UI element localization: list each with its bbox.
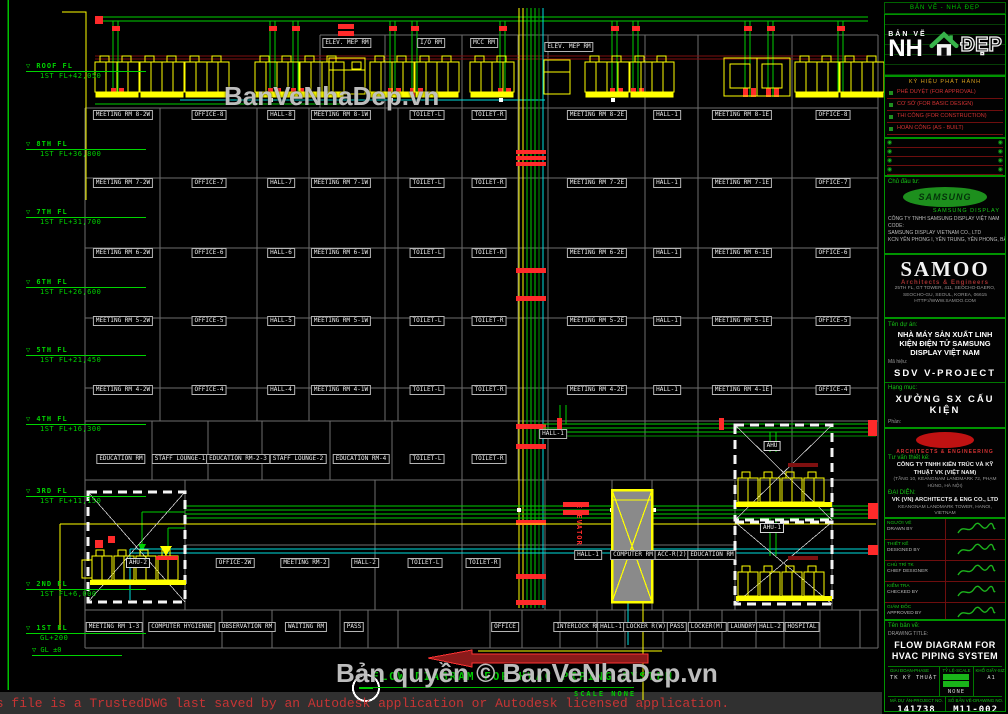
part-label: Phần: xyxy=(888,419,1002,425)
room-label: HALL-1 xyxy=(653,248,681,258)
project-block: Tên dự án: NHÀ MÁY SẢN XUẤT LINH KIỆN ĐI… xyxy=(884,318,1006,428)
owner-block: Chủ đầu tư: SAMSUNG SAMSUNG DISPLAY CÔNG… xyxy=(884,176,1006,254)
signature-scribble xyxy=(956,542,996,558)
room-label: OFFICE-5 xyxy=(816,316,851,326)
owner-label: Chủ đầu tư: xyxy=(888,179,1002,185)
signature-role: KIỂM TRACHECKED BY xyxy=(885,582,946,602)
drawing-title-text: FLOW DIAGRAM FOR HVAC PIPING SYSTEM xyxy=(888,640,1002,662)
room-label: TOILET-L xyxy=(410,385,445,395)
banvenhadep-logo: BẢN VẼ NH ĐẸP xyxy=(884,14,1006,76)
room-label: MEETING RM 4-1E xyxy=(712,385,772,395)
floor-level-label: ▽ ROOF FL1ST FL+42,050 xyxy=(26,62,146,81)
room-label: EDUCATION RM xyxy=(96,454,145,464)
room-label: HALL-1 xyxy=(597,622,625,632)
trusteddwg-strip: is file is a TrustedDWG last saved by an… xyxy=(0,692,882,714)
room-label: OFFICE-4 xyxy=(816,385,851,395)
designer-name-en: VK (VN) ARCHITECTS & ENG CO., LTD xyxy=(888,497,1002,505)
samoo-line: HTTP://WWW.SAMOO.COM xyxy=(885,299,1005,306)
room-label: TOILET-R xyxy=(472,385,507,395)
floor-level-label: ▽ 2ND FL1ST FL+6,000 xyxy=(26,580,146,599)
revision-row: CƠ SỞ (FOR BASIC DESIGN) xyxy=(887,99,1003,111)
designer-label: Tư vấn thiết kế: xyxy=(888,455,1002,461)
elevator-tag: ELEVATOR xyxy=(575,504,583,546)
signature-scribble xyxy=(956,563,996,579)
title-label-vi: Tên bản vẽ: xyxy=(888,623,1002,629)
room-label: MCC RM xyxy=(470,38,498,48)
cad-sheet: ELEV. MEP RMI/O RMMCC RMELEV. MEP RMMEET… xyxy=(0,0,1008,714)
room-label: COMPUTER HYGIENNE xyxy=(148,622,215,632)
samsung-logo: SAMSUNG xyxy=(903,187,987,207)
room-label: AHU-2 xyxy=(126,558,150,568)
floor-level-label: ▽ 1ST FLGL+200▽ GL ±0 xyxy=(26,624,146,656)
signature-scribble xyxy=(956,584,996,600)
room-label: COMPUTER RM xyxy=(610,550,656,560)
symbol-row: ◉◉ xyxy=(887,148,1003,157)
designer-addr1: (TẦNG 10, KEANGNAM LANDMARK 72, PHẠM HÙN… xyxy=(888,477,1002,490)
room-label: MEETING RM 6-2E xyxy=(567,248,627,258)
room-label: OFFICE xyxy=(491,622,519,632)
signature-role: THIẾT KẾDESIGNED BY xyxy=(885,540,946,560)
signature-row: KIỂM TRACHECKED BY xyxy=(885,582,1005,603)
room-label: TOILET-L xyxy=(408,558,443,568)
owner-sub: SAMSUNG DISPLAY xyxy=(888,208,1000,214)
sidebar-top-note: BẢN VẼ - NHÀ ĐẸP xyxy=(884,2,1006,14)
room-label: PASS xyxy=(667,622,687,632)
room-label: HALL-6 xyxy=(267,248,295,258)
drawing-title-block: Tên bản vẽ: DRAWING TITLE: FLOW DIAGRAM … xyxy=(884,620,1006,712)
house-icon xyxy=(929,30,959,60)
room-label: OFFICE-7 xyxy=(192,178,227,188)
floor-level-label: ▽ 8TH FL1ST FL+36,800 xyxy=(26,140,146,159)
room-label: EDUCATION RM-4 xyxy=(333,454,390,464)
room-label: AHU xyxy=(764,441,781,451)
samoo-block: SAMOO Architects & Engineers 25TH FL, GT… xyxy=(884,254,1006,318)
room-label: MEETING RM 8-1E xyxy=(712,110,772,120)
room-label: MEETING RM 6-1E xyxy=(712,248,772,258)
project-code: SDV V-PROJECT xyxy=(888,368,1002,379)
meta-cell: TỶ LỆ-SCALENONE xyxy=(940,667,973,696)
floor-level-label: ▽ 6TH FL1ST FL+26,600 xyxy=(26,278,146,297)
room-label: TOILET-L xyxy=(410,248,445,258)
owner-line: KCN YÊN PHONG I, YÊN TRUNG, YÊN PHONG, B… xyxy=(888,237,1002,244)
room-label: MEETING RM 7-1W xyxy=(311,178,371,188)
room-label: EDUCATION RM-2-3 xyxy=(206,454,270,464)
room-label: HALL-1 xyxy=(574,550,602,560)
room-label: LAUNDRY xyxy=(727,622,758,632)
samoo-wordmark: SAMOO xyxy=(885,258,1005,280)
room-label: WAITING RM xyxy=(285,622,327,632)
room-label: MEETING RM-2 xyxy=(280,558,329,568)
room-label: HALL-4 xyxy=(267,385,295,395)
room-label: LOCKER R(W) xyxy=(623,622,669,632)
symbol-row: ◉◉ xyxy=(887,166,1003,175)
signature-role: GIÁM ĐỐCAPPROVED BY xyxy=(885,603,946,620)
room-label: OFFICE-2W xyxy=(216,558,255,568)
room-label: TOILET-R xyxy=(472,110,507,120)
owner-line: CÔNG TY TNHH SAMSUNG DISPLAY VIỆT NAM xyxy=(888,216,1002,223)
item-label: Hạng mục: xyxy=(888,385,1002,391)
logo-text-dep: ĐẸP xyxy=(961,35,1002,55)
floor-level-label: ▽ 5TH FL1ST FL+21,450 xyxy=(26,346,146,365)
signature-row: GIÁM ĐỐCAPPROVED BY xyxy=(885,603,1005,620)
room-label: TOILET-R xyxy=(472,178,507,188)
room-label: OBSERVATION RM xyxy=(219,622,276,632)
room-label: MEETING RM 8-2E xyxy=(567,110,627,120)
symbol-row: ◉◉ xyxy=(887,139,1003,148)
roof-units xyxy=(95,56,884,97)
room-label: HALL-5 xyxy=(267,316,295,326)
signature-role: NGƯỜI VẼDRAWN BY xyxy=(885,519,946,539)
watermark-bottom: Bản quyền © BanVeNhaDep.vn xyxy=(336,658,718,689)
room-label: ELEV. MEP RM xyxy=(322,38,371,48)
signature-row: THIẾT KẾDESIGNED BY xyxy=(885,540,1005,561)
room-label: MEETING RM 7-1E xyxy=(712,178,772,188)
room-label: OFFICE-6 xyxy=(192,248,227,258)
room-label: HALL-1 xyxy=(539,429,567,439)
room-label: ELEV. MEP RM xyxy=(544,42,593,52)
revision-row: THI CÔNG (FOR CONSTRUCTION) xyxy=(887,111,1003,123)
signature-scribble xyxy=(956,605,996,620)
title-block: BẢN VẼ - NHÀ ĐẸP BẢN VẼ NH ĐẸP KÝ HIỆU P… xyxy=(884,2,1006,714)
revision-row: HOÀN CÔNG (AS - BUILT) xyxy=(887,123,1003,135)
trusteddwg-text: is file is a TrustedDWG last saved by an… xyxy=(0,696,729,711)
floor-level-label: ▽ 3RD FL1ST FL+11,150 xyxy=(26,487,146,506)
room-label: OFFICE-8 xyxy=(816,110,851,120)
designer-name-vi: CÔNG TY TNHH KIẾN TRÚC VÀ KỸ THUẬT VK (V… xyxy=(888,462,1002,477)
revision-table: KÝ HIỆU PHÁT HÀNH PHÊ DUYỆT (FOR APPROVA… xyxy=(884,76,1006,138)
room-label: HALL-1 xyxy=(653,110,681,120)
room-label: MEETING RM 5-1E xyxy=(712,316,772,326)
designer-block: ARCHITECTS & ENGINEERING Tư vấn thiết kế… xyxy=(884,428,1006,518)
room-label: ACC-R(2) xyxy=(655,550,690,560)
designer-addr2: KEANGNAM LANDMARK TOWER, HANOI, VIETNAM xyxy=(888,505,1002,518)
room-label: AHU-1 xyxy=(760,523,784,533)
signature-scribble xyxy=(956,521,996,537)
samoo-line: 25TH FL, GT TOWER, 411, SEOCHO-DAERO, xyxy=(885,286,1005,293)
room-label: OFFICE-8 xyxy=(192,110,227,120)
project-name: NHÀ MÁY SẢN XUẤT LINH KIỆN ĐIỆN TỬ SAMSU… xyxy=(888,330,1002,357)
room-label: TOILET-R xyxy=(472,454,507,464)
room-label: MEETING RM 7-2W xyxy=(93,178,153,188)
room-label: OFFICE-5 xyxy=(192,316,227,326)
upper-distribution xyxy=(543,405,877,452)
room-label: HOSPITAL xyxy=(785,622,820,632)
room-label: MEETING RM 5-1W xyxy=(311,316,371,326)
room-label: OFFICE-7 xyxy=(816,178,851,188)
logo-text-big: NH xyxy=(888,38,923,60)
room-label: STAFF LOUNGE-1 xyxy=(152,454,209,464)
room-label: TOILET-L xyxy=(410,316,445,326)
room-label: MEETING RM 7-2E xyxy=(567,178,627,188)
room-label: INTERLOCK RM xyxy=(553,622,602,632)
project-label: Tên dự án: xyxy=(888,322,1002,328)
room-label: MEETING RM 6-1W xyxy=(311,248,371,258)
symbol-table: ◉◉◉◉◉◉◉◉ xyxy=(884,138,1006,176)
room-label: TOILET-R xyxy=(472,316,507,326)
cad-drawing xyxy=(0,0,1008,714)
designer-label2: ĐẠI DIỆN: xyxy=(888,490,1002,496)
room-label: HALL-1 xyxy=(653,385,681,395)
item-name: XƯỞNG SX CẤU KIỆN xyxy=(888,394,1002,416)
room-label: OFFICE-4 xyxy=(192,385,227,395)
room-label: EDUCATION RM xyxy=(687,550,736,560)
room-label: MEETING RM 8-2W xyxy=(93,110,153,120)
ahu-units xyxy=(82,463,832,601)
room-label: MEETING RM 5-2E xyxy=(567,316,627,326)
room-label: TOILET-R xyxy=(466,558,501,568)
vk-logo xyxy=(916,432,974,448)
revision-row: PHÊ DUYỆT (FOR APPROVAL) xyxy=(887,87,1003,99)
grid-lines xyxy=(85,35,878,648)
meta-cell: GIAI ĐOẠN-PHASETK KỸ THUẬT xyxy=(888,667,940,696)
room-label: HALL-2 xyxy=(351,558,379,568)
room-label: LOCKER(M) xyxy=(688,622,727,632)
room-label: TOILET-L xyxy=(410,454,445,464)
owner-line: SAMSUNG DISPLAY VIETNAM CO., LTD xyxy=(888,230,1002,237)
room-label: MEETING RM 6-2W xyxy=(93,248,153,258)
room-label: I/O RM xyxy=(417,38,445,48)
room-label: HALL-1 xyxy=(653,178,681,188)
symbol-row: ◉◉ xyxy=(887,157,1003,166)
meta-cell: SỐ BẢN VẼ-DRAWING NO.M11-002 xyxy=(946,697,1005,712)
room-label: PASS xyxy=(344,622,364,632)
room-label: OFFICE-6 xyxy=(816,248,851,258)
signature-role: CHỦ TRÌ TKCHIEF DESIGNER xyxy=(885,561,946,581)
signature-row: CHỦ TRÌ TKCHIEF DESIGNER xyxy=(885,561,1005,582)
watermark-center: BanVeNhaDep.vn xyxy=(224,81,439,112)
room-label: MEETING RM 4-1W xyxy=(311,385,371,395)
room-label: HALL-1 xyxy=(653,316,681,326)
revision-header: KÝ HIỆU PHÁT HÀNH xyxy=(887,78,1003,87)
title-label-en: DRAWING TITLE: xyxy=(888,631,1002,637)
signature-table: NGƯỜI VẼDRAWN BYTHIẾT KẾDESIGNED BYCHỦ T… xyxy=(884,518,1006,620)
floor-level-label: ▽ 7TH FL1ST FL+31,700 xyxy=(26,208,146,227)
signature-row: NGƯỜI VẼDRAWN BY xyxy=(885,519,1005,540)
floor-level-label: ▽ 4TH FL1ST FL+16,300 xyxy=(26,415,146,434)
roof-piping xyxy=(62,12,868,200)
sheet-scale: SCALE NONE xyxy=(574,690,636,698)
room-label: MEETING RM 4-2E xyxy=(567,385,627,395)
room-label: TOILET-L xyxy=(410,178,445,188)
meta-cell: MÃ DỰ ÁN-PROJECT NO.141738 xyxy=(888,697,946,712)
project-code-label: Mã hiệu: xyxy=(888,359,1002,365)
room-label: TOILET-R xyxy=(472,248,507,258)
room-label: MEETING RM 5-2W xyxy=(93,316,153,326)
room-label: HALL-7 xyxy=(267,178,295,188)
meta-cell: KHỔ GIẤY-SIZEA1 xyxy=(974,667,1007,696)
room-label: HALL-2 xyxy=(756,622,784,632)
room-label: STAFF LOUNGE-2 xyxy=(270,454,327,464)
owner-line: CODE: xyxy=(888,223,1002,230)
room-label: MEETING RM 4-2W xyxy=(93,385,153,395)
